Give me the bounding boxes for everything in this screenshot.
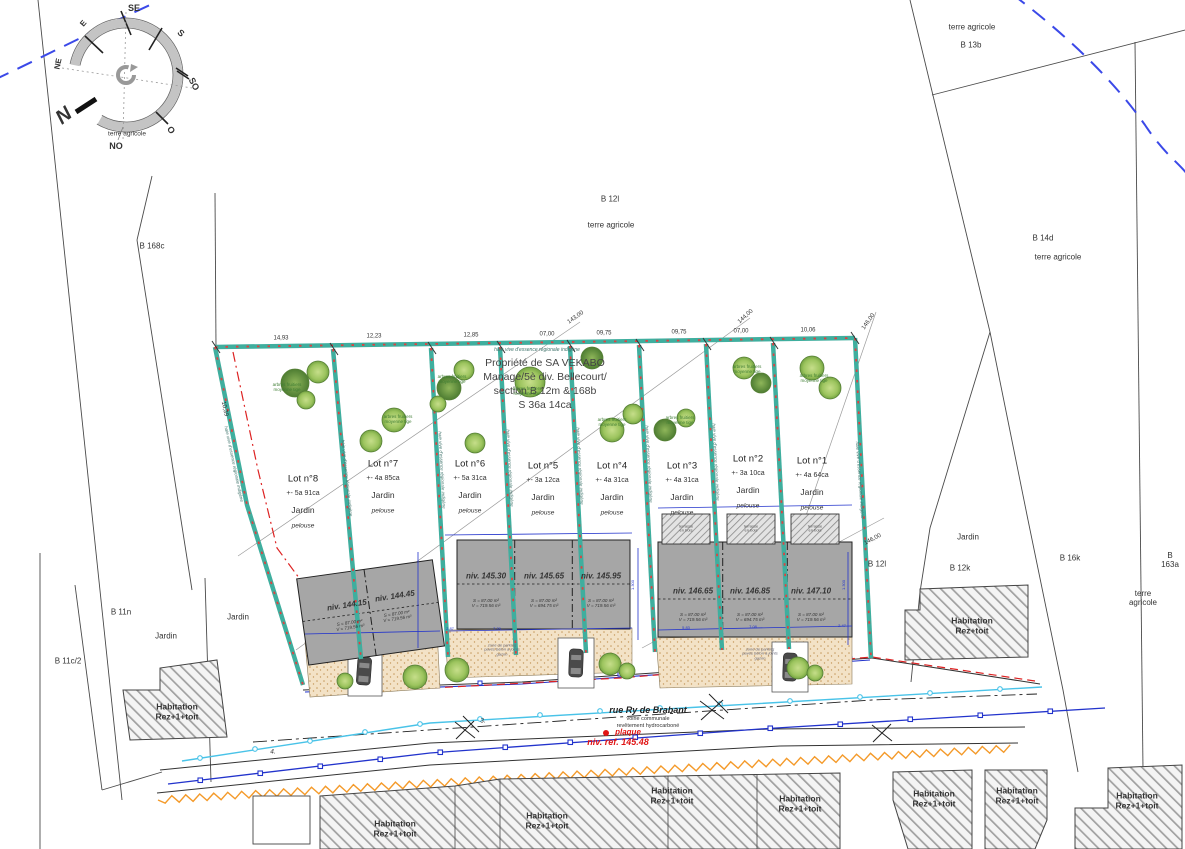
north-arrow xyxy=(76,99,96,112)
terraces xyxy=(662,514,839,544)
plaque-marker xyxy=(603,730,609,736)
site-plan: SE E S NE SO O NO N terre agricole B 168… xyxy=(0,0,1185,849)
site-plan-drawing xyxy=(0,0,1185,849)
outbuilding xyxy=(253,796,310,844)
compass-rose xyxy=(62,11,192,140)
